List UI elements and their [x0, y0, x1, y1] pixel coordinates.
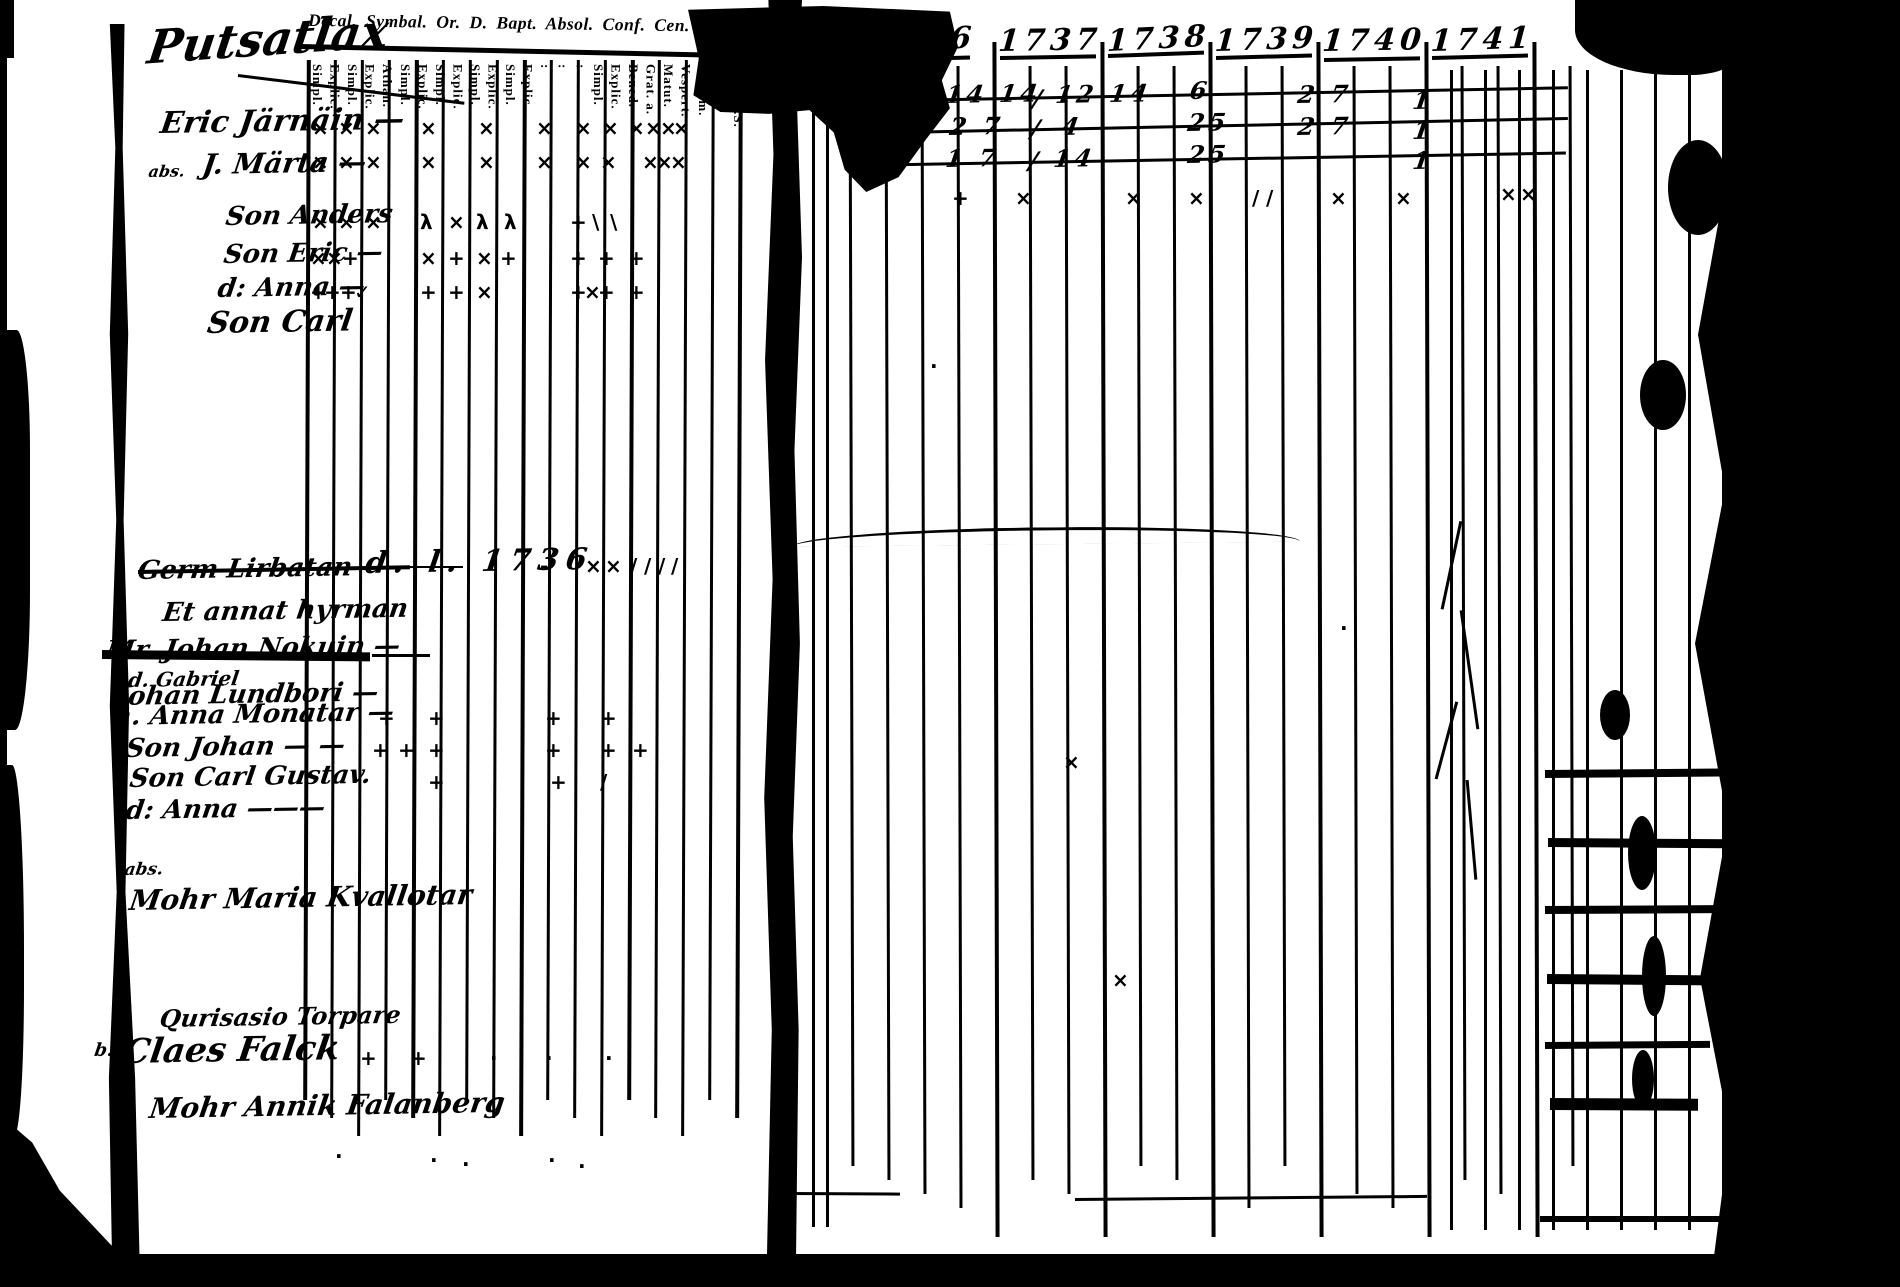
scan-edge-bottom	[0, 1254, 1900, 1287]
ink-stroke	[1435, 701, 1459, 779]
tally-mark: /	[1252, 188, 1259, 208]
column-label: :	[572, 64, 588, 69]
ruled-line	[1100, 42, 1107, 1237]
handwritten-name: Qurisasio Torpare	[158, 1000, 403, 1033]
tally-mark: ·	[1340, 618, 1348, 638]
ruled-line	[1620, 70, 1623, 1230]
ruled-line	[1245, 66, 1250, 1208]
ruled-line	[1208, 42, 1215, 1237]
ruled-line	[411, 60, 419, 1118]
tally-mark: ×	[312, 212, 329, 232]
tally-mark: ×	[1395, 188, 1412, 208]
handwritten-name: d: Anna ———	[124, 793, 327, 826]
ruled-line	[1688, 70, 1691, 1230]
ruled-line	[681, 60, 687, 1136]
tally-mark: ×	[1500, 184, 1517, 204]
tally-mark: ×	[478, 152, 495, 172]
ruled-line	[1065, 66, 1070, 1194]
ink-stroke	[1000, 54, 1096, 60]
ruled-line	[1586, 70, 1589, 1230]
ruled-line	[826, 42, 829, 1227]
tally-mark: ·	[335, 1146, 343, 1166]
ink-blob	[1600, 690, 1630, 740]
number-entry: 2 7	[1296, 111, 1354, 141]
tally-mark: +	[448, 248, 465, 268]
ink-stroke	[1547, 974, 1725, 986]
tally-mark: ×	[585, 556, 602, 576]
tally-mark: ×	[673, 118, 690, 138]
ink-stroke	[1540, 1216, 1725, 1222]
handwritten-name: Mohr Maria Kvallotar	[127, 878, 474, 917]
ruled-line	[957, 66, 962, 1208]
column-label: Explic.	[607, 64, 623, 110]
tally-mark: ·	[462, 1154, 470, 1174]
tally-mark: ·	[605, 1048, 613, 1068]
annotation: d. l. 1736	[363, 542, 596, 581]
column-label: :	[555, 64, 571, 69]
ruled-line	[812, 42, 815, 1227]
ruled-line	[438, 60, 444, 1136]
scan-blob-left-upper	[0, 330, 30, 730]
scan-blob-topright	[1575, 0, 1740, 75]
tally-mark: ×	[338, 152, 355, 172]
ruled-line	[627, 60, 635, 1100]
tally-mark: ·	[930, 356, 938, 376]
tally-mark: /	[644, 556, 651, 576]
ink-stroke	[1075, 1195, 1427, 1201]
tally-mark: ×	[478, 118, 495, 138]
tally-mark: ×	[312, 152, 329, 172]
scan-blob-left-lower	[0, 765, 24, 1135]
handwritten-name: abs.	[147, 161, 186, 181]
tally-mark: +	[428, 772, 445, 792]
ruled-line	[1281, 66, 1286, 1166]
ruled-line	[519, 60, 527, 1136]
column-label: Simpl.	[502, 64, 518, 106]
handwritten-name: Claes Falck	[120, 1028, 342, 1072]
ruled-line	[1654, 70, 1657, 1230]
ruled-line	[1173, 66, 1178, 1180]
tally-mark: λ	[476, 212, 489, 232]
ruled-line	[708, 60, 714, 1100]
ruled-line	[1424, 42, 1431, 1237]
scan-gutter-bar	[760, 0, 802, 1287]
tally-mark: ×	[420, 248, 437, 268]
scanned-ledger-page: Putsatlax Decal. Symbal. Or. D. Bapt. Ab…	[0, 0, 1900, 1287]
tally-mark: ×	[1112, 970, 1129, 990]
ruled-line	[1484, 70, 1487, 1230]
ink-stroke	[1466, 780, 1478, 880]
tally-mark: ·	[548, 1150, 556, 1170]
tally-mark: +	[952, 188, 969, 208]
tally-mark: ·	[578, 1156, 586, 1176]
tally-mark: +	[598, 248, 615, 268]
ruled-line	[1569, 66, 1574, 1166]
ruled-line	[849, 66, 854, 1166]
tally-mark: ×	[312, 118, 329, 138]
ruled-line	[1552, 70, 1555, 1230]
ink-blob	[1640, 360, 1686, 430]
ruled-line	[1461, 66, 1466, 1180]
tally-mark: +	[598, 282, 615, 302]
tally-mark: ·	[430, 1150, 438, 1170]
column-label: Matut.	[660, 64, 676, 108]
handwritten-name: Son Johan — —	[124, 730, 347, 764]
tally-mark: +	[448, 282, 465, 302]
column-label: Simpl.	[344, 64, 360, 106]
number-entry: 14	[1052, 143, 1098, 173]
ink-stroke	[1545, 1041, 1710, 1049]
ruled-line	[1137, 66, 1142, 1166]
column-label: Grat. a.	[642, 64, 658, 115]
tally-mark: ×	[338, 118, 355, 138]
column-label: Simpl.	[397, 64, 413, 106]
ruled-line	[546, 60, 552, 1100]
ruled-line	[654, 60, 660, 1118]
tally-mark: /	[658, 556, 665, 576]
handwritten-name: Mohr Annik Falanberg	[147, 1086, 507, 1125]
tally-mark: \	[592, 212, 599, 232]
tally-mark: +	[342, 248, 359, 268]
handwritten-name: Son Carl Gustav.	[128, 760, 373, 794]
tally-mark: ×	[338, 212, 355, 232]
handwritten-name: h. Anna Monatar —	[111, 697, 396, 732]
tally-mark: +	[500, 248, 517, 268]
tally-mark: ×	[448, 212, 465, 232]
tally-mark: ×	[476, 282, 493, 302]
tally-mark: +	[550, 772, 567, 792]
number-entry: 1	[1411, 146, 1436, 175]
tally-mark: ×	[1330, 188, 1347, 208]
ruled-line	[1518, 70, 1521, 1230]
ink-stroke	[792, 525, 1300, 547]
ink-blob	[1632, 1050, 1654, 1108]
ruled-line	[735, 60, 743, 1118]
tally-mark: /	[1266, 188, 1273, 208]
handwritten-name: Et annat hyrman	[161, 594, 410, 628]
scan-corner-topleft	[0, 0, 14, 58]
tally-mark: ×	[1188, 188, 1205, 208]
ruled-line	[1316, 42, 1323, 1237]
tally-mark: +	[420, 282, 437, 302]
tally-mark: ×	[365, 152, 382, 172]
year-label: 1740	[1321, 22, 1428, 59]
ruled-line	[921, 66, 926, 1194]
ruled-line	[1029, 66, 1034, 1180]
tally-mark: +	[632, 740, 649, 760]
ink-stroke	[788, 1192, 900, 1196]
scan-edge-right-solid	[1722, 0, 1900, 1287]
tally-mark: /	[671, 556, 678, 576]
tally-mark: ×	[476, 248, 493, 268]
tally-mark: λ	[504, 212, 517, 232]
ink-blob	[1628, 816, 1656, 890]
ruled-line	[465, 60, 471, 1100]
tally-mark: ×	[365, 212, 382, 232]
tally-mark: ×	[420, 118, 437, 138]
ruled-line	[600, 60, 606, 1136]
tally-mark: +	[360, 1048, 377, 1068]
ruled-line	[1389, 66, 1394, 1208]
ink-stroke	[1324, 56, 1420, 62]
handwritten-name: abs.	[123, 859, 164, 880]
ink-stroke	[372, 654, 430, 657]
ruled-line	[992, 42, 999, 1237]
tally-mark: λ	[420, 212, 433, 232]
tally-mark: ×	[420, 152, 437, 172]
tally-mark: +	[428, 740, 445, 760]
ruled-line	[885, 66, 890, 1180]
tally-mark: \	[610, 212, 617, 232]
tally-mark: ×	[605, 556, 622, 576]
tally-mark: ×	[310, 248, 327, 268]
tally-mark: ×	[365, 118, 382, 138]
ruled-line	[492, 60, 498, 1118]
tally-mark: +	[428, 708, 445, 728]
ruled-line	[1532, 42, 1539, 1237]
ruled-line	[1497, 66, 1502, 1194]
ruled-line	[1353, 66, 1358, 1194]
ruled-line	[1450, 70, 1453, 1230]
